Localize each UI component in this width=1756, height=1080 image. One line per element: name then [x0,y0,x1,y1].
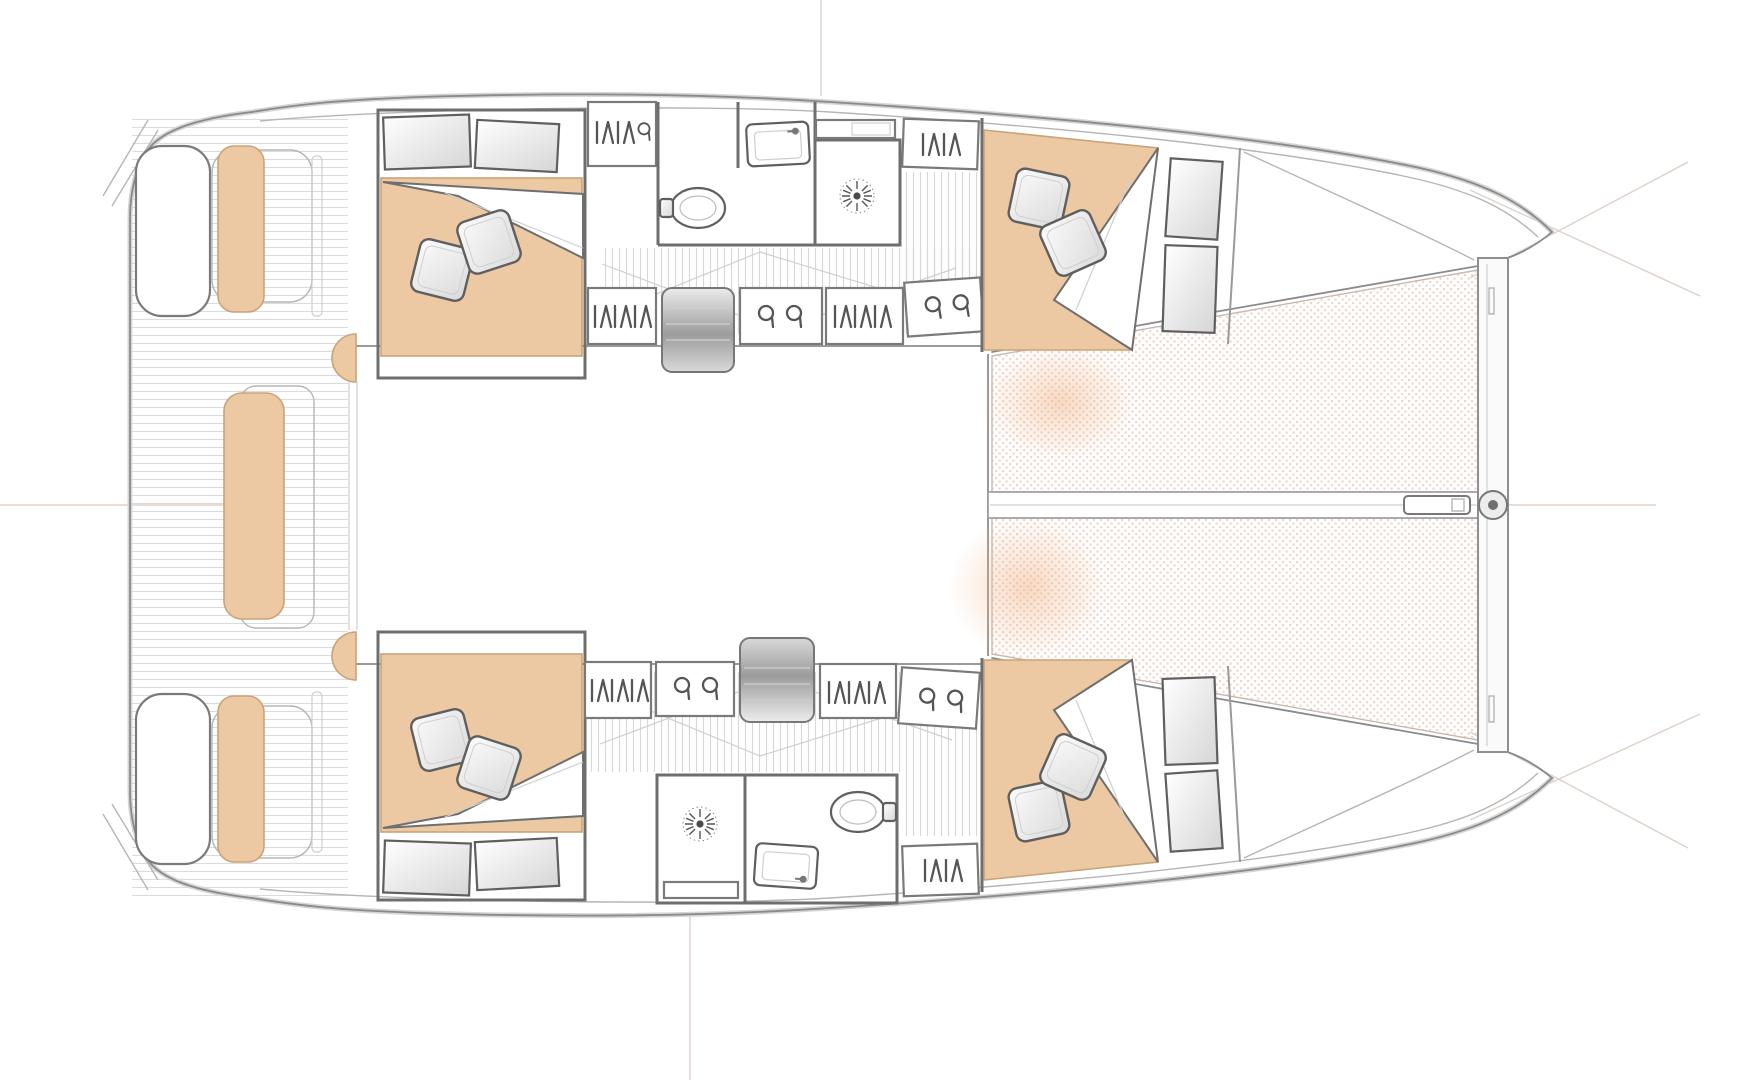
starboard-foredeck-line [1244,750,1474,858]
deck-shading [948,516,1108,660]
shower-shelf [664,882,738,898]
port-forward-cabin [982,118,1240,352]
transom-bench-cushion-port [218,146,264,312]
transom-bench-cushion-starboard [218,696,264,862]
catamaran-floorplan-page [0,0,1756,1080]
sink-vanity [754,843,819,889]
deck-shading [982,344,1138,460]
louver-locker [902,844,979,897]
swim-platform-starboard [136,694,210,864]
port-aft-cabin [378,110,585,378]
vent-locker [740,288,822,344]
storage-shelf [1163,677,1218,765]
louver-locker [902,119,979,170]
starboard-passageway-floor-fwd [900,772,980,836]
toilet [831,792,896,832]
storage-shelf [1163,245,1218,333]
companionway-steps [740,638,814,722]
starboard-locker-row [585,638,980,729]
companionway-steps [662,288,734,372]
louver-locker [588,288,656,344]
storage-shelf [475,120,559,172]
port-foredeck-line [1244,152,1474,260]
vent-locker [898,667,980,728]
toilet [660,188,725,228]
swim-platform-port [136,146,210,316]
sink-vanity [746,121,810,166]
storage-shelf [383,841,471,896]
aft-center-bench-cushion [224,393,284,619]
starboard-hull-interior [378,632,1240,903]
catamaran-floorplan-drawing [0,0,1756,1080]
port-hull-interior [378,102,1240,378]
starboard-forward-cabin [982,658,1240,892]
vent-locker [904,277,984,336]
storage-shelf [475,838,559,890]
storage-shelf [383,115,471,170]
starboard-aft-cabin [378,632,585,900]
storage-shelf [1165,158,1222,239]
storage-shelf [1165,770,1222,851]
port-locker-row [588,277,984,372]
vent-locker [656,662,734,716]
saloon-door [349,382,357,630]
